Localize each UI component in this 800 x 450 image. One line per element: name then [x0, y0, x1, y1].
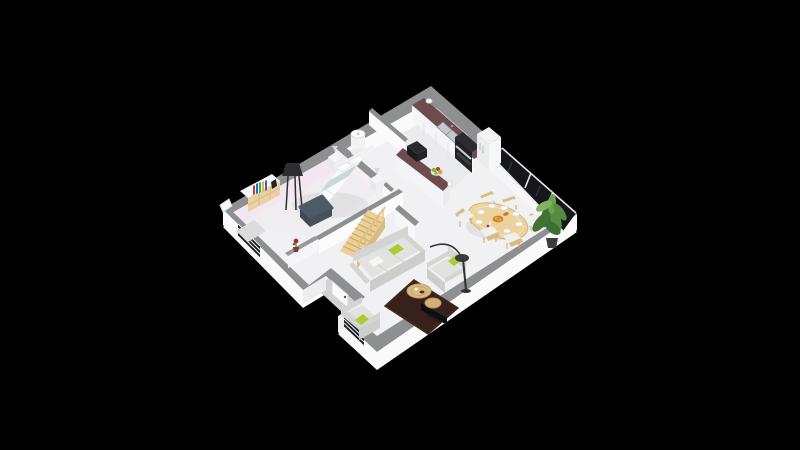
paper-towel-roll: [426, 99, 432, 103]
bread-basket: [493, 216, 503, 222]
floor-plan-render: [0, 0, 800, 450]
faucet: [451, 125, 453, 127]
lamp-base: [461, 289, 471, 293]
jug: [489, 222, 491, 225]
shower-head: [357, 133, 360, 136]
cup: [415, 288, 418, 291]
jar: [448, 181, 452, 186]
lamp-shade: [455, 254, 469, 262]
coffee-table-small: [425, 298, 441, 308]
bowl: [420, 291, 425, 294]
flower-pot-base: [293, 247, 299, 252]
door-handle: [344, 296, 346, 298]
floor-plan-canvas: [0, 0, 800, 450]
plant-pot: [546, 238, 558, 248]
